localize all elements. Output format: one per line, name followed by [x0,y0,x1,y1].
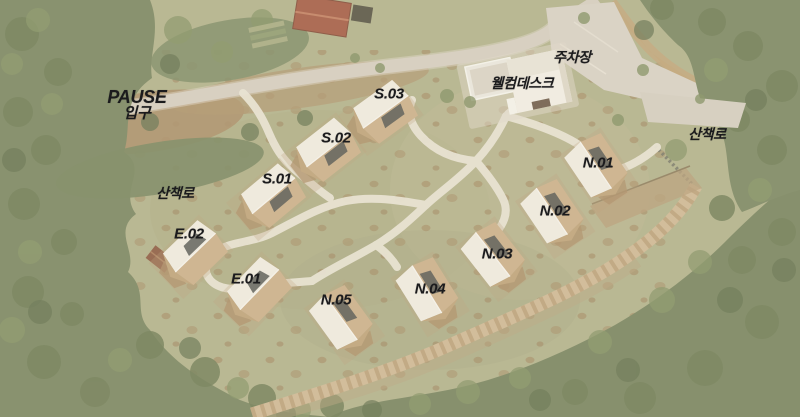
entrance-label: PAUSE 입구 [107,88,166,122]
entrance-word: 입구 [107,107,166,122]
campsite-aerial-map: PAUSE 입구 주차장 웰컴데스크 산책로 산책로 S.01 S.02 S.0… [0,0,800,417]
trail-east-label: 산책로 [688,127,726,141]
parking-label: 주차장 [553,50,591,64]
aerial-photo [0,0,800,417]
unit-label-s01: S.01 [262,171,292,186]
unit-label-e02: E.02 [174,226,204,241]
unit-label-n03: N.03 [482,246,513,261]
unit-label-n02: N.02 [540,203,571,218]
unit-label-n04: N.04 [415,281,446,296]
unit-label-s03: S.03 [374,86,404,101]
unit-label-n05: N.05 [321,292,352,307]
trail-west-label: 산책로 [156,186,194,200]
welcome-desk-label: 웰컴데스크 [491,76,554,90]
haze-overlay [0,0,800,417]
entrance-name: PAUSE [107,88,166,106]
unit-label-s02: S.02 [321,130,351,145]
unit-label-n01: N.01 [583,155,614,170]
unit-label-e01: E.01 [231,271,261,286]
